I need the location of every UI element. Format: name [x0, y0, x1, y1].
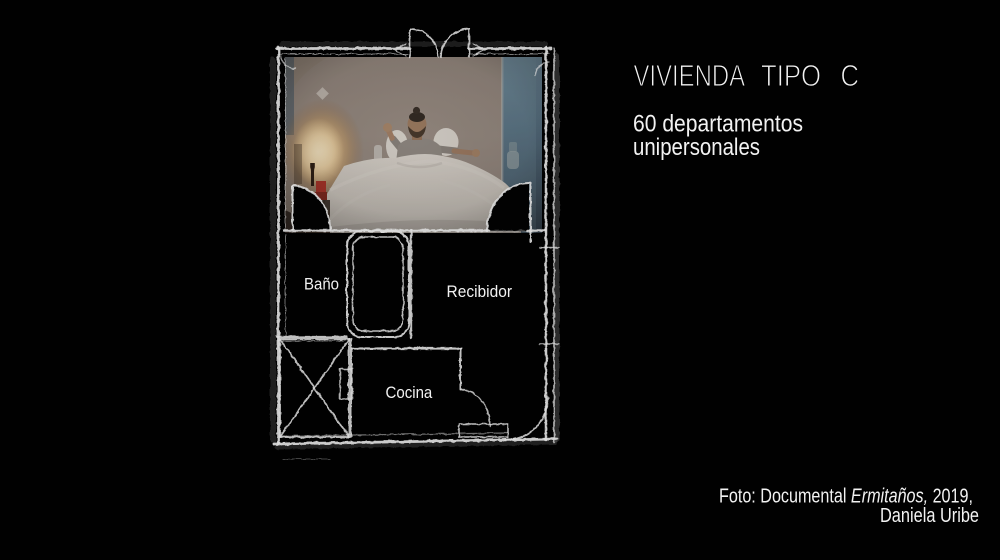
svg-text:Cocina: Cocina [386, 384, 434, 402]
svg-text:Baño: Baño [304, 276, 339, 294]
svg-text:TIPO: TIPO [761, 59, 821, 93]
svg-text:Recibidor: Recibidor [447, 282, 513, 301]
svg-text:Daniela Uribe: Daniela Uribe [880, 505, 979, 527]
svg-text:VIVIENDA: VIVIENDA [634, 59, 746, 93]
svg-text:unipersonales: unipersonales [633, 134, 760, 161]
svg-text:C: C [841, 59, 860, 93]
svg-text:Foto: Documental Ermitaños, 20: Foto: Documental Ermitaños, 2019, [719, 485, 973, 507]
